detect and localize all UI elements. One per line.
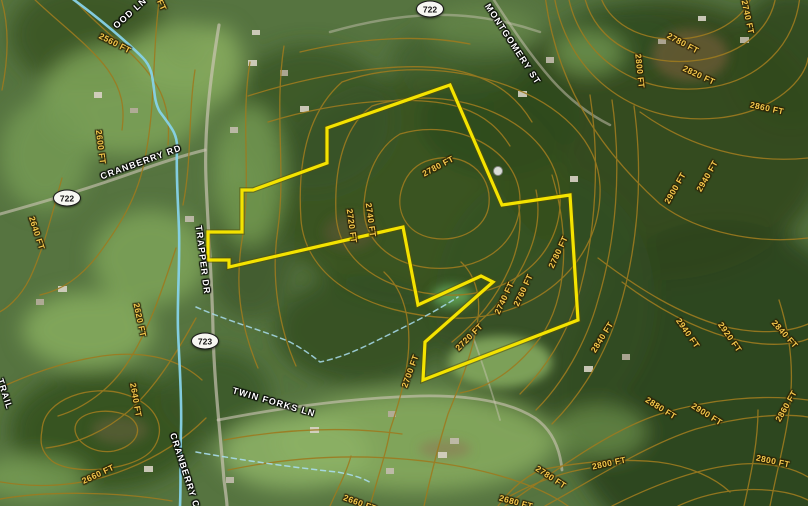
terrain-base xyxy=(0,0,808,506)
water-tank xyxy=(494,167,503,176)
map-canvas xyxy=(0,0,808,506)
satellite-topo-map[interactable]: 2560 FTFT2600 FT2640 FT2620 FT2640 FT266… xyxy=(0,0,808,506)
